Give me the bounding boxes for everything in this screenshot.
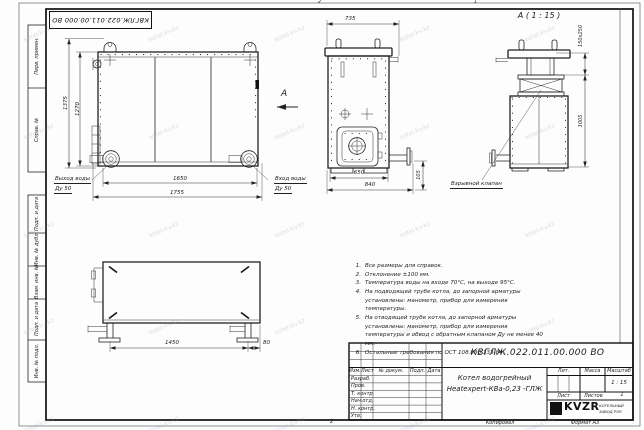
side-dim-650: 650 <box>341 170 377 176</box>
note-text: Температура воды на входе 70°С, на выход… <box>365 279 516 288</box>
kvzr-logo-icon <box>550 402 562 415</box>
front-view-linework <box>90 43 259 168</box>
scale-header: Масштаб <box>605 369 633 375</box>
row-prov: Пров. <box>351 384 366 390</box>
col-header-list: Лист <box>361 369 373 375</box>
col-header-izm: Изм. <box>349 369 361 375</box>
margin-label-vzam-inv: Взам. инв. № <box>34 265 40 299</box>
note-number: 1. <box>352 262 361 271</box>
detail-view-title: А ( 1 : 15 ) <box>504 12 574 21</box>
plan-dim-1450: 1450 <box>154 340 190 346</box>
row-n-kontr: Н. контр. <box>351 407 375 413</box>
copied-by-label: Копировал <box>460 421 540 427</box>
water-outlet-dn-label: Ду 50 <box>54 186 72 194</box>
row-t-kontr: Т. контр. <box>351 392 374 398</box>
fold-mark-bottom: 2 <box>330 420 333 426</box>
margin-label-podp-data-1: Подп. и дата <box>34 197 40 231</box>
front-dim-1375: 1375 <box>63 96 69 110</box>
margin-label-podp-data-2: Подп. и дата <box>34 302 40 336</box>
side-dim-840: 840 <box>352 182 388 188</box>
technical-notes: 1.Все размеры для справок. 2.Отклонение … <box>352 262 546 357</box>
plan-view-linework <box>88 262 260 342</box>
front-dim-1755: 1755 <box>159 190 195 196</box>
top-stamp-text: КВГЛЖ.022.011.00.000 ВО <box>52 16 149 24</box>
plan-view-dimensions <box>110 325 260 352</box>
side-view-linework <box>325 39 412 173</box>
title-block-doc-number: КВГЛЖ.022.011.00.000 ВО <box>442 349 633 359</box>
note-item: 4.На подводящей трубе котла, до запорной… <box>352 288 546 314</box>
sheet-label: Лист <box>547 394 580 400</box>
format-label: Формат А3 <box>555 421 615 427</box>
drawing-sheet: КВГЛЖ.022.011.00.000 ВО 2 1 2 Перв. прим… <box>0 0 644 430</box>
note-text: Отклонение ±100 мм. <box>365 271 430 280</box>
col-header-doc: № докум. <box>373 369 409 375</box>
front-dim-1270: 1270 <box>75 102 81 116</box>
product-name-line1: Котел водогрейный <box>442 375 547 383</box>
detail-dim-1005: 1005 <box>578 115 584 128</box>
water-inlet-label: Вход воды <box>274 176 307 184</box>
note-number: 2. <box>352 271 361 280</box>
margin-label-inv-podl: Инв. № подл. <box>34 344 40 379</box>
col-header-data: Дата <box>426 369 442 375</box>
col-header-podp: Подп. <box>409 369 426 375</box>
sheets-value: 1 <box>615 393 629 399</box>
mass-header: Масса <box>580 369 605 375</box>
note-number: 4. <box>352 288 361 314</box>
fold-mark-top-right: 1 <box>474 0 477 6</box>
note-number: 5. <box>352 314 361 349</box>
kvzr-logo-subtext-2: ЗАВОД РЭП <box>599 409 622 414</box>
note-number: 3. <box>352 279 361 288</box>
note-text: На отводящей трубе котла, до запорной ар… <box>365 314 546 349</box>
row-utv: Утв. <box>351 414 362 420</box>
lit-header: Лит. <box>547 369 580 375</box>
detail-dim-150x250: 150x250 <box>578 25 584 47</box>
detail-view-dimensions <box>556 53 589 167</box>
note-text: Все размеры для справок. <box>365 262 443 271</box>
note-number: 6. <box>352 349 361 358</box>
sheet-frame <box>19 3 640 426</box>
fold-mark-top: 2 <box>318 0 321 6</box>
side-dim-735: 735 <box>345 16 356 22</box>
note-item: 5.На отводящей трубе котла, до запорной … <box>352 314 546 349</box>
plan-dim-80: 80 <box>263 340 270 346</box>
sheets-label: Листов <box>584 394 603 400</box>
front-dim-1650: 1650 <box>162 176 198 182</box>
note-item: 1.Все размеры для справок. <box>352 262 546 271</box>
water-outlet-label: Выход воды <box>54 176 91 184</box>
margin-label-perv-primen: Перв. примен. <box>34 37 40 75</box>
note-text: На подводящей трубе котла, до запорной а… <box>365 288 546 314</box>
row-nach-otd: Нач.отд. <box>351 399 373 405</box>
callout-leader <box>482 90 541 180</box>
note-item: 3.Температура воды на входе 70°С, на вых… <box>352 279 546 288</box>
margin-label-sprav-no: Справ. № <box>34 118 40 142</box>
water-inlet-dn-label: Ду 50 <box>274 186 292 194</box>
margin-label-inv-dubl: Инв. № дубл. <box>34 232 40 266</box>
drawing-linework <box>0 0 644 430</box>
kvzr-logo-text: KVZR <box>564 400 599 413</box>
note-item: 2.Отклонение ±100 мм. <box>352 271 546 280</box>
top-reversed-stamp: КВГЛЖ.022.011.00.000 ВО <box>49 11 152 29</box>
side-dim-105: 105 <box>416 170 422 180</box>
product-name-line2: Heatexpert-КВа-0,23 -ГЛЖ <box>442 386 547 394</box>
detail-view-linework <box>482 40 570 180</box>
row-razrab: Разраб. <box>351 377 371 383</box>
kvzr-logo-subtext-1: КОТЕЛЬНЫЙ <box>599 403 624 408</box>
explosion-valve-callout: Взрывной клапан <box>450 181 503 189</box>
scale-value: 1 : 15 <box>605 380 633 386</box>
section-arrow-letter: А <box>281 90 287 100</box>
